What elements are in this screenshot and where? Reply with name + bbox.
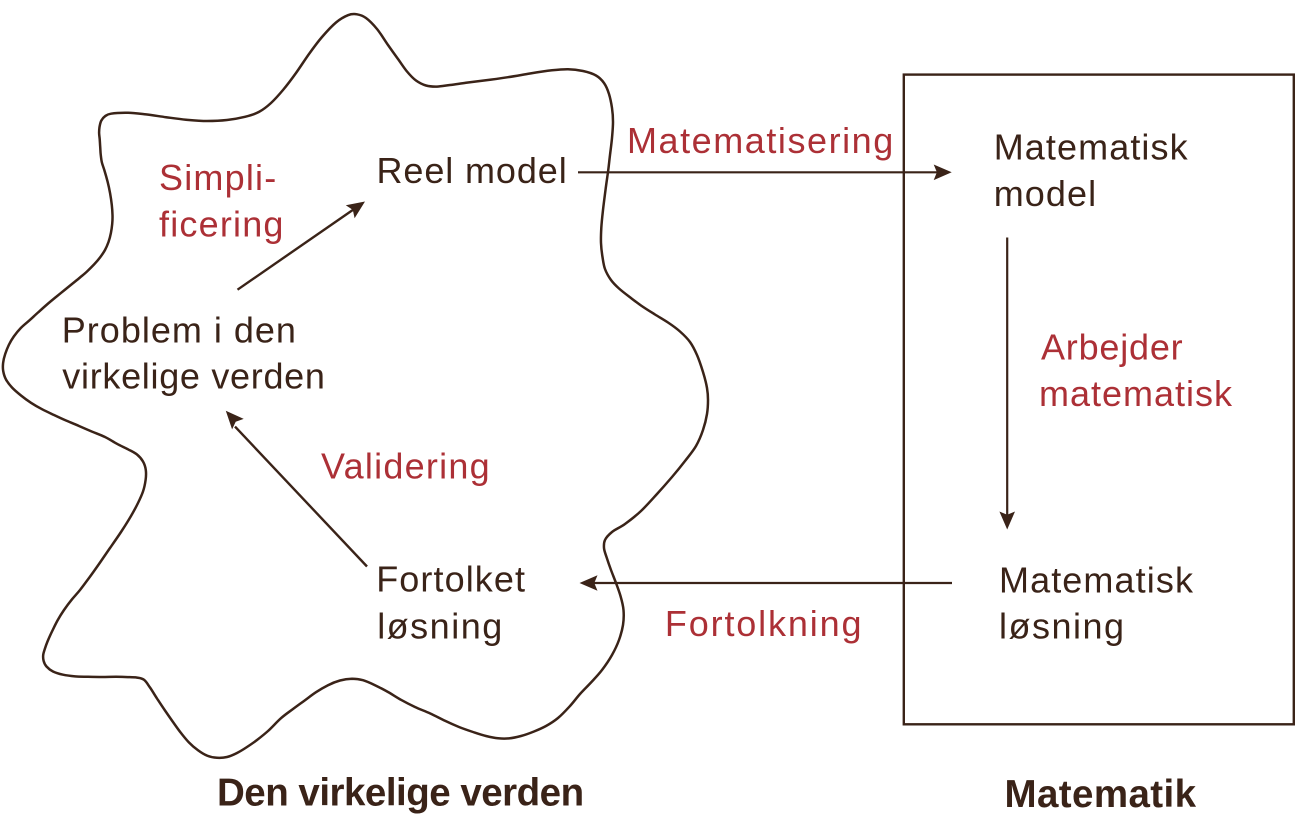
svg-text:Arbejder: Arbejder bbox=[1041, 327, 1183, 368]
svg-text:løsning: løsning bbox=[999, 606, 1126, 647]
svg-text:matematisk: matematisk bbox=[1039, 373, 1233, 414]
svg-text:Problem i den: Problem i den bbox=[62, 310, 297, 351]
svg-text:Matematisk: Matematisk bbox=[994, 127, 1189, 168]
svg-text:ficering: ficering bbox=[159, 204, 285, 245]
svg-text:Reel model: Reel model bbox=[377, 150, 568, 191]
svg-text:Fortolket: Fortolket bbox=[376, 559, 526, 600]
svg-text:Fortolkning: Fortolkning bbox=[665, 603, 863, 644]
svg-text:løsning: løsning bbox=[377, 606, 504, 647]
svg-text:Simpli-: Simpli- bbox=[159, 157, 277, 198]
svg-text:Matematik: Matematik bbox=[1005, 773, 1197, 816]
svg-text:Matematisering: Matematisering bbox=[627, 120, 895, 161]
svg-text:Den virkelige verden: Den virkelige verden bbox=[217, 771, 584, 814]
svg-text:virkelige verden: virkelige verden bbox=[62, 356, 325, 397]
svg-text:Validering: Validering bbox=[321, 445, 491, 486]
svg-text:Matematisk: Matematisk bbox=[999, 560, 1194, 601]
svg-text:model: model bbox=[994, 173, 1098, 214]
